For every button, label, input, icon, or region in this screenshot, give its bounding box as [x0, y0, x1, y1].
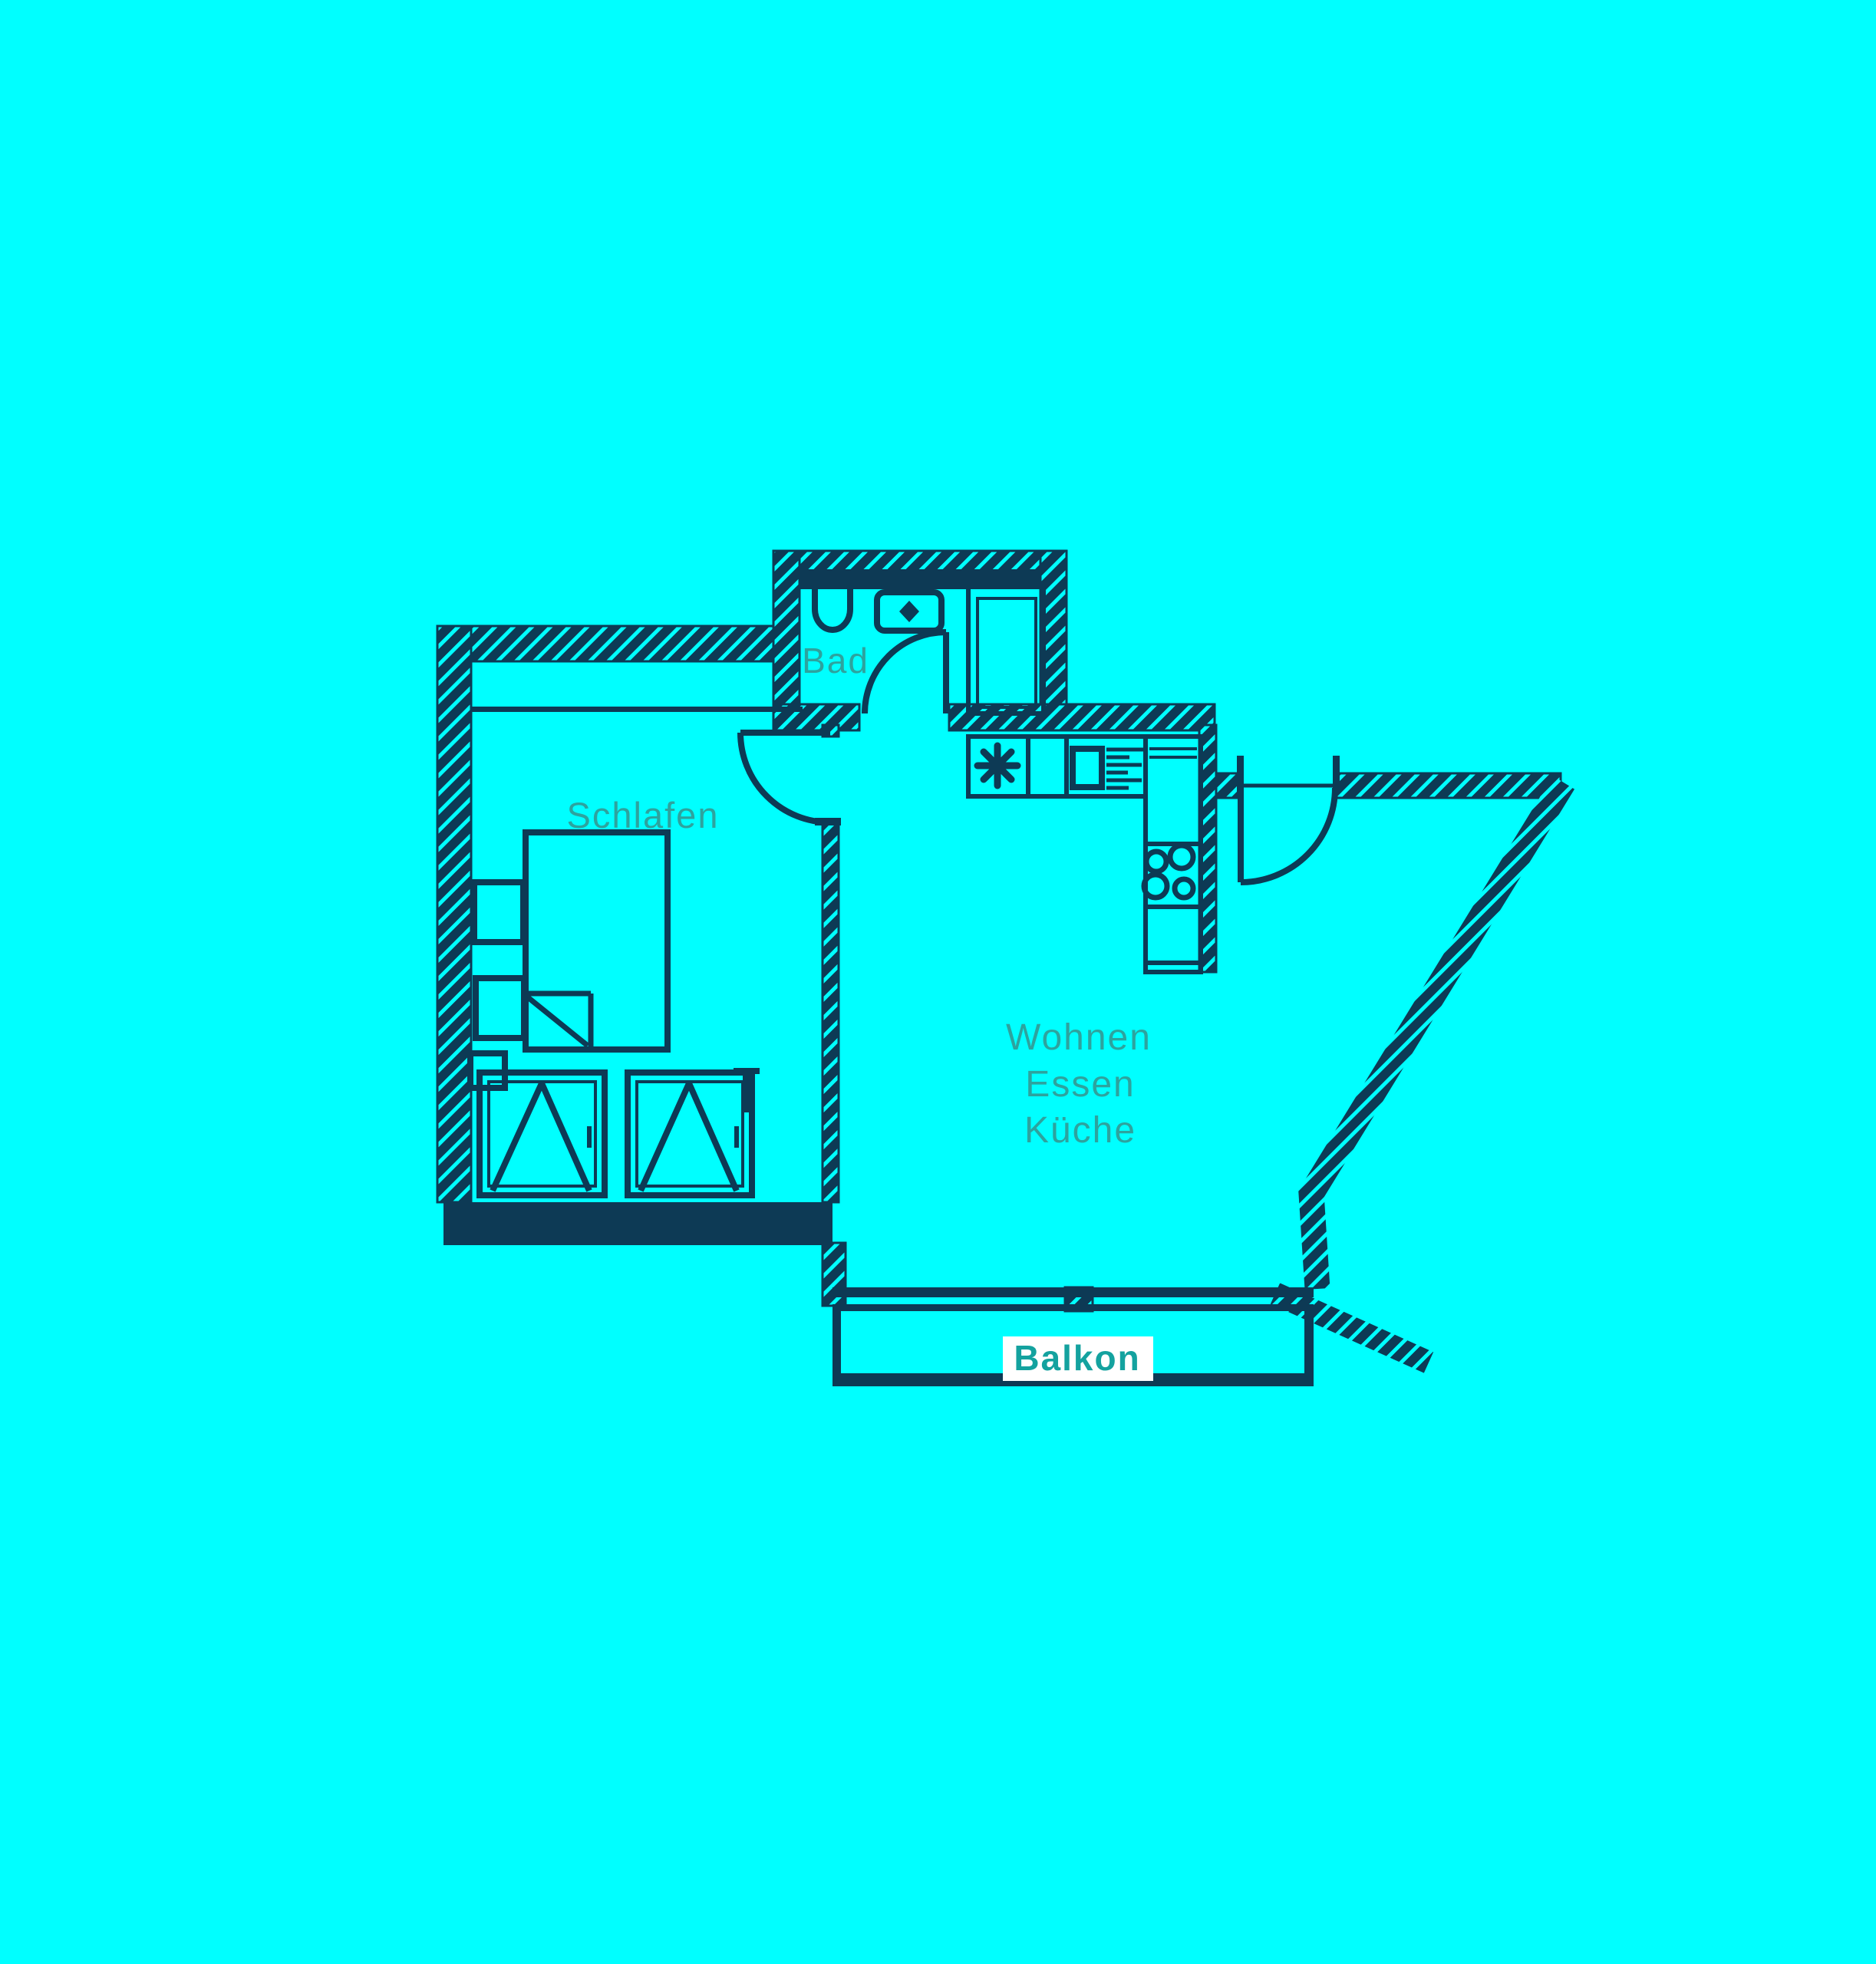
label-bedroom: Schlafen: [567, 795, 720, 835]
entry-door-swing: [1241, 788, 1335, 882]
wall-bedroom-left: [437, 626, 471, 1202]
bedroom-door-sill: [815, 818, 841, 825]
kitchen-sink-drainer: [1106, 750, 1143, 788]
bedroom-inner-line: [471, 707, 803, 712]
balcony-right-edge: [1304, 1304, 1314, 1381]
nightstand-lower: [476, 978, 524, 1038]
entry-door-jamb-left: [1237, 756, 1244, 794]
bed-blanket-fold: [526, 994, 591, 1050]
toilet: [815, 589, 850, 630]
wall-angled-lower: [1275, 1293, 1429, 1363]
entry-door-jamb-right: [1333, 756, 1340, 794]
bedroom-furniture: [470, 832, 760, 1195]
wall-bedroom-living: [823, 823, 839, 1202]
wall-entry-right: [1337, 773, 1561, 798]
floor-plan-svg: Bad Schlafen Wohnen Essen Küche Balkon: [0, 0, 1876, 1964]
washbasin-drain-icon: [899, 601, 919, 622]
balcony-left-edge: [832, 1304, 841, 1381]
shower-tray-inner: [978, 598, 1036, 707]
kitchen-sink-basin: [1073, 749, 1102, 787]
balcony-inner-line: [841, 1304, 1304, 1311]
label-bathroom: Bad: [802, 641, 869, 680]
label-balcony: Balkon: [1014, 1338, 1140, 1378]
label-living-line1: Wohnen: [1006, 1017, 1152, 1058]
nightstand-upper: [474, 882, 523, 942]
shower-tray: [968, 585, 1044, 713]
kitchen: [968, 736, 1201, 972]
walls: [437, 551, 1564, 1363]
bedroom-misc-fitting: [734, 1071, 760, 1112]
floor-plan-page: Bad Schlafen Wohnen Essen Küche Balkon: [0, 0, 1876, 1964]
wall-bedroom-bottom: [443, 1202, 832, 1245]
wardrobe-right: [628, 1073, 752, 1195]
wall-bedroom-top: [437, 626, 773, 661]
balcony-window-line: [832, 1287, 1314, 1297]
kitchen-star-icon: [978, 746, 1017, 786]
label-living-line2: Essen: [1025, 1064, 1135, 1105]
bedroom-door-swing: [740, 733, 830, 822]
wall-angled-exterior: [1311, 783, 1564, 1289]
label-living-line3: Küche: [1024, 1110, 1136, 1151]
bed: [526, 832, 668, 1050]
stove-burners: [1144, 845, 1193, 898]
bathroom-door-swing: [865, 632, 946, 713]
